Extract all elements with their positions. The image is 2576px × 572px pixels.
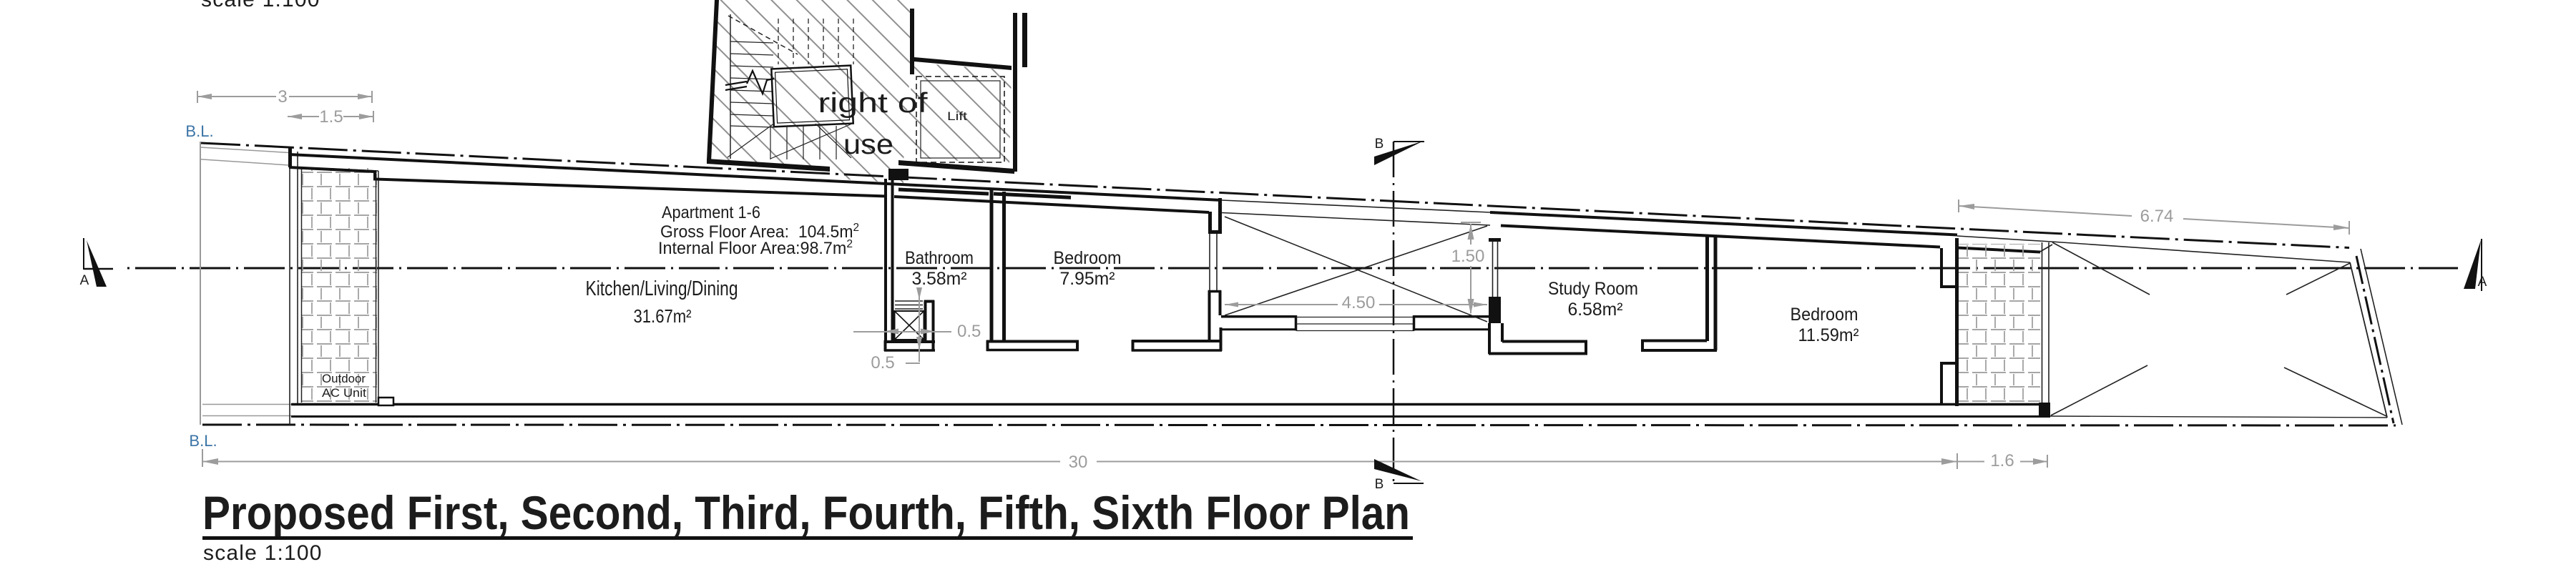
svg-text:6.74: 6.74	[2140, 207, 2174, 226]
svg-text:Apartment 1-6: Apartment 1-6	[662, 203, 760, 222]
svg-text:1.6: 1.6	[1990, 451, 2014, 470]
svg-text:7.95m²: 7.95m²	[1060, 269, 1115, 289]
svg-text:Lift: Lift	[947, 109, 967, 123]
svg-text:Bathroom: Bathroom	[905, 248, 974, 268]
svg-text:Bedroom: Bedroom	[1791, 305, 1858, 325]
svg-text:B: B	[1375, 137, 1384, 152]
svg-text:B.L.: B.L.	[185, 122, 213, 140]
svg-text:Kitchen/Living/Dining: Kitchen/Living/Dining	[586, 277, 738, 300]
svg-text:31.67m²: 31.67m²	[634, 305, 692, 327]
svg-text:Internal Floor Area:98.7m2: Internal Floor Area:98.7m2	[658, 238, 853, 258]
svg-text:0.5: 0.5	[957, 322, 981, 341]
svg-text:use: use	[843, 129, 893, 160]
svg-text:3: 3	[278, 87, 287, 107]
svg-text:1.50: 1.50	[1451, 247, 1485, 266]
svg-text:0.5: 0.5	[871, 353, 894, 373]
svg-text:Proposed First, Second, Third,: Proposed First, Second, Third, Fourth, F…	[202, 486, 1410, 539]
svg-text:6.58m²: 6.58m²	[1568, 300, 1623, 320]
svg-text:Outdoor: Outdoor	[322, 372, 366, 385]
svg-text:AC Unit: AC Unit	[322, 386, 366, 400]
svg-text:A: A	[2478, 275, 2487, 290]
svg-text:11.59m²: 11.59m²	[1798, 325, 1859, 345]
svg-text:right of: right of	[818, 88, 928, 119]
svg-text:4.50: 4.50	[1342, 293, 1376, 312]
svg-text:1.5: 1.5	[319, 107, 343, 127]
svg-text:scale 1:100: scale 1:100	[201, 0, 320, 11]
svg-text:Bedroom: Bedroom	[1054, 248, 1122, 268]
svg-text:B.L.: B.L.	[189, 432, 217, 450]
svg-text:3.58m²: 3.58m²	[912, 269, 967, 289]
svg-text:Study Room: Study Room	[1548, 279, 1638, 299]
svg-text:A: A	[80, 273, 89, 288]
svg-text:30: 30	[1069, 453, 1088, 472]
svg-text:scale 1:100: scale 1:100	[203, 541, 323, 565]
